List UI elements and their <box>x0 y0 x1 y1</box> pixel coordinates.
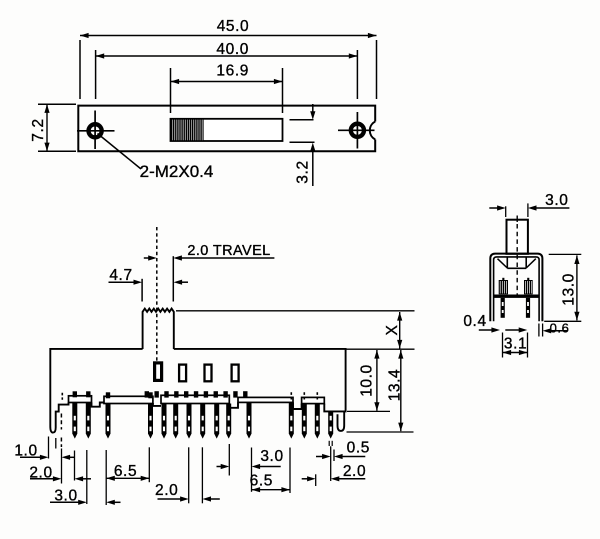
svg-text:6.5: 6.5 <box>114 463 137 480</box>
svg-text:7.2: 7.2 <box>30 118 47 141</box>
svg-text:0.6: 0.6 <box>550 321 570 336</box>
svg-text:0.5: 0.5 <box>347 440 370 457</box>
svg-text:2-M2X0.4: 2-M2X0.4 <box>140 162 214 181</box>
svg-text:45.0: 45.0 <box>217 18 250 35</box>
svg-text:40.0: 40.0 <box>216 41 249 58</box>
svg-text:0.4: 0.4 <box>463 313 486 330</box>
svg-text:3.2: 3.2 <box>294 160 311 183</box>
svg-text:X: X <box>384 324 401 335</box>
svg-text:10.0: 10.0 <box>358 364 375 397</box>
svg-text:2.0 TRAVEL: 2.0 TRAVEL <box>187 243 270 259</box>
svg-text:13.0: 13.0 <box>560 273 577 306</box>
svg-text:6.5: 6.5 <box>250 472 273 489</box>
svg-text:3.0: 3.0 <box>260 448 283 465</box>
svg-text:3.1: 3.1 <box>504 335 527 352</box>
svg-text:16.9: 16.9 <box>216 63 249 80</box>
svg-text:4.7: 4.7 <box>109 267 132 284</box>
svg-text:3.0: 3.0 <box>545 192 568 209</box>
svg-text:13.4: 13.4 <box>386 369 403 402</box>
svg-text:2.0: 2.0 <box>155 482 178 499</box>
svg-text:2.0: 2.0 <box>343 463 366 480</box>
